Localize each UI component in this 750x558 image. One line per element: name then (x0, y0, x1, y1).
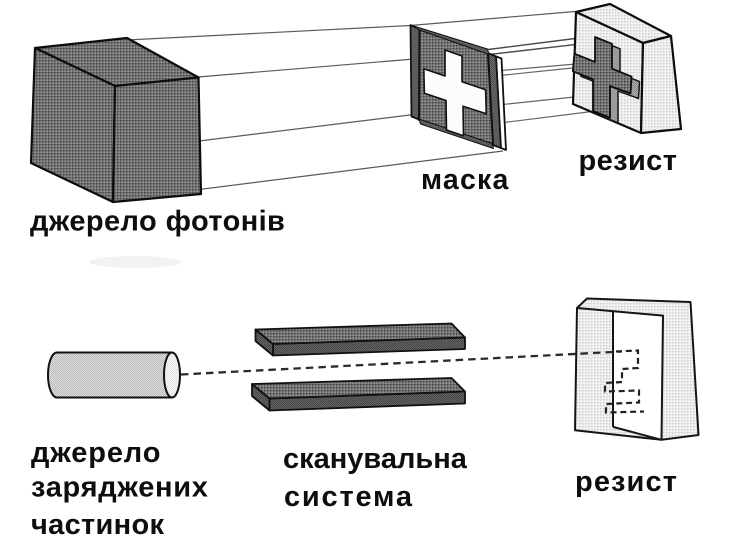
svg-text:система: система (284, 481, 414, 513)
svg-text:резист: резист (579, 145, 678, 177)
svg-text:частинок: частинок (31, 509, 164, 541)
svg-text:джерело фотонів: джерело фотонів (30, 206, 285, 238)
svg-text:заряджених: заряджених (31, 472, 209, 504)
svg-text:резист: резист (575, 466, 678, 498)
svg-text:маска: маска (421, 164, 510, 196)
svg-text:сканувальна: сканувальна (283, 443, 468, 475)
svg-text:джерело: джерело (31, 437, 161, 469)
